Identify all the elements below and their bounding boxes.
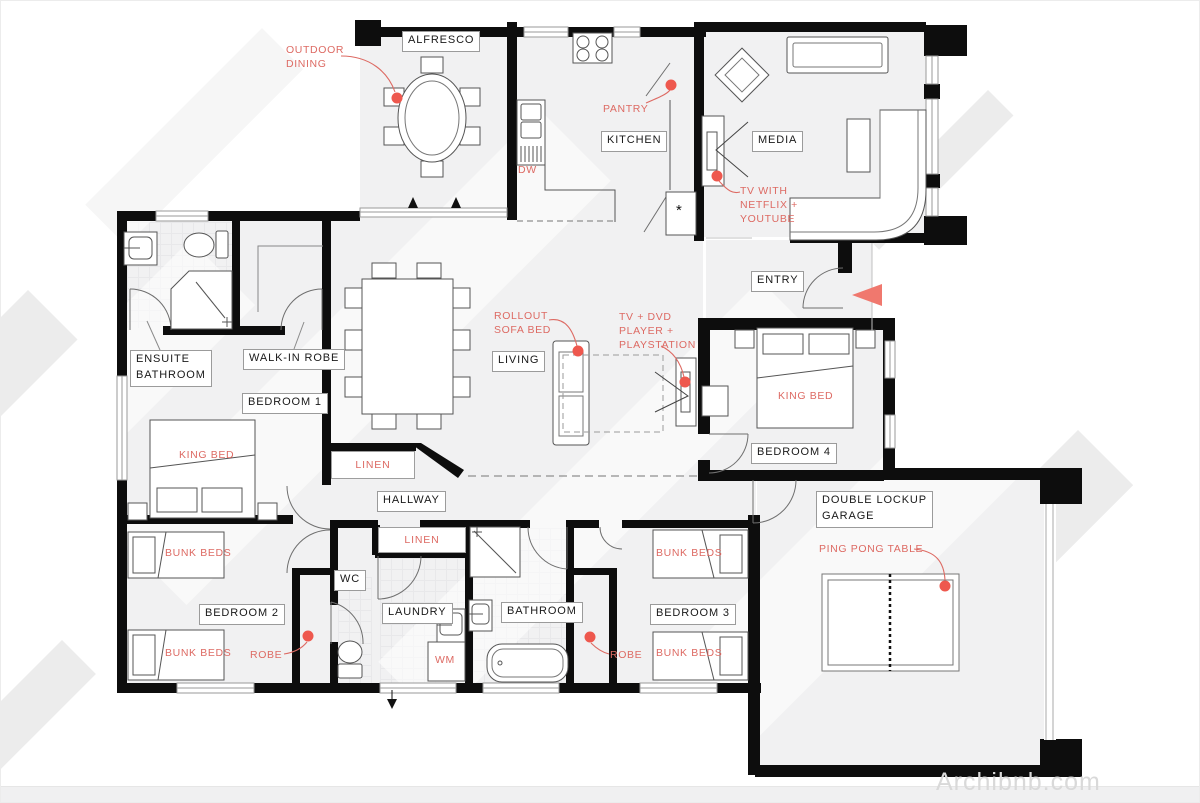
wc-toilet	[338, 641, 362, 678]
watermark-text: Archibnb.com	[936, 768, 1101, 797]
ensuite-toilet	[184, 231, 228, 258]
note-washing-machine: WM	[435, 653, 455, 667]
king-bed-bedroom1	[128, 420, 277, 520]
label-entry: ENTRY	[751, 271, 804, 292]
kitchen-sink	[517, 100, 545, 165]
window	[926, 56, 938, 84]
door-bedroom3	[600, 527, 622, 549]
door-bedroom1	[287, 486, 330, 529]
window	[885, 415, 895, 448]
window	[885, 341, 895, 378]
label-ensuite-bathroom: ENSUITE BATHROOM	[130, 350, 212, 387]
window	[614, 27, 640, 37]
door-entry	[803, 268, 843, 308]
note-dishwasher: DW	[518, 163, 537, 177]
window	[926, 99, 938, 174]
label-kitchen: KITCHEN	[601, 131, 667, 152]
note-king-bed-1: KING BED	[179, 448, 234, 462]
note-pantry: PANTRY	[603, 102, 648, 116]
stove-cooktop	[573, 33, 612, 63]
bathroom-shower	[470, 527, 520, 577]
window	[483, 683, 559, 693]
label-living: LIVING	[492, 351, 545, 372]
linen-laundry-text: LINEN	[404, 534, 439, 546]
label-hallway: HALLWAY	[377, 491, 446, 512]
window	[380, 683, 456, 693]
door-ensuite	[130, 289, 171, 330]
king-bed-bedroom4	[702, 328, 875, 428]
label-bedroom-1: BEDROOM 1	[242, 393, 328, 414]
door-pantry	[646, 63, 670, 96]
window	[117, 376, 127, 480]
note-outdoor-dining: OUTDOOR DINING	[286, 43, 344, 71]
outdoor-dining-table	[384, 57, 480, 177]
door-walk-in-robe	[281, 289, 322, 330]
media-coffee-table	[847, 119, 870, 172]
linen-hall-text: LINEN	[355, 459, 390, 471]
door-bathroom	[528, 527, 567, 569]
window	[926, 188, 938, 216]
sliding-door	[360, 208, 507, 217]
label-alfresco: ALFRESCO	[402, 31, 480, 52]
media-tv-unit	[702, 116, 748, 186]
label-garage: DOUBLE LOCKUP GARAGE	[816, 491, 933, 528]
plan-graphics	[0, 0, 1200, 803]
label-wc: WC	[334, 570, 366, 591]
ping-pong-table	[822, 574, 959, 671]
window	[156, 211, 208, 221]
bathroom-vanity	[469, 600, 492, 631]
door-laundry	[378, 556, 421, 599]
note-robe-2: ROBE	[250, 648, 282, 662]
closet-linen-laundry: LINEN	[378, 527, 466, 553]
note-bunk-beds-3-bottom: BUNK BEDS	[656, 646, 722, 660]
note-tv-dvd-playstation: TV + DVD PLAYER + PLAYSTATION	[619, 310, 696, 353]
note-king-bed-4: KING BED	[778, 389, 833, 403]
rollout-sofa	[553, 341, 663, 445]
door-fridge-nook	[644, 197, 666, 232]
ensuite-shower	[171, 271, 232, 329]
floor-plan: ALFRESCO KITCHEN MEDIA ENTRY LIVING HALL…	[0, 0, 1200, 803]
ensuite-vanity	[124, 232, 157, 265]
door-bedroom2	[287, 530, 330, 573]
kitchen-bench	[545, 100, 670, 222]
garage-door	[1044, 504, 1056, 740]
note-rollout-sofa-bed: ROLLOUT SOFA BED	[494, 309, 551, 337]
note-bunk-beds-2-bottom: BUNK BEDS	[165, 646, 231, 660]
dining-table	[345, 263, 470, 429]
label-walk-in-robe: WALK-IN ROBE	[243, 349, 345, 370]
note-robe-3: ROBE	[610, 648, 642, 662]
fridge-symbol: *	[676, 202, 682, 219]
label-media: MEDIA	[752, 131, 803, 152]
window	[640, 683, 717, 693]
entry-arrow-icon	[852, 284, 882, 306]
bathtub	[487, 644, 568, 682]
closet-linen-hall: LINEN	[331, 451, 415, 479]
window	[177, 683, 254, 693]
label-bathroom: BATHROOM	[501, 602, 583, 623]
note-ping-pong-table: PING PONG TABLE	[819, 542, 923, 556]
note-bunk-beds-2-top: BUNK BEDS	[165, 546, 231, 560]
media-armchair	[715, 48, 769, 102]
note-tv-netflix: TV WITH NETFLIX + YOUTUBE	[740, 184, 798, 227]
label-laundry: LAUNDRY	[382, 603, 453, 624]
label-bedroom-4: BEDROOM 4	[751, 443, 837, 464]
label-bedroom-3: BEDROOM 3	[650, 604, 736, 625]
note-bunk-beds-3-top: BUNK BEDS	[656, 546, 722, 560]
media-sofa	[787, 37, 888, 73]
walk-in-robe-shelf	[258, 246, 323, 312]
window	[524, 27, 568, 37]
label-bedroom-2: BEDROOM 2	[199, 604, 285, 625]
door-wc	[331, 602, 363, 644]
living-tv-unit	[655, 358, 696, 426]
door-bedroom4	[709, 434, 748, 473]
